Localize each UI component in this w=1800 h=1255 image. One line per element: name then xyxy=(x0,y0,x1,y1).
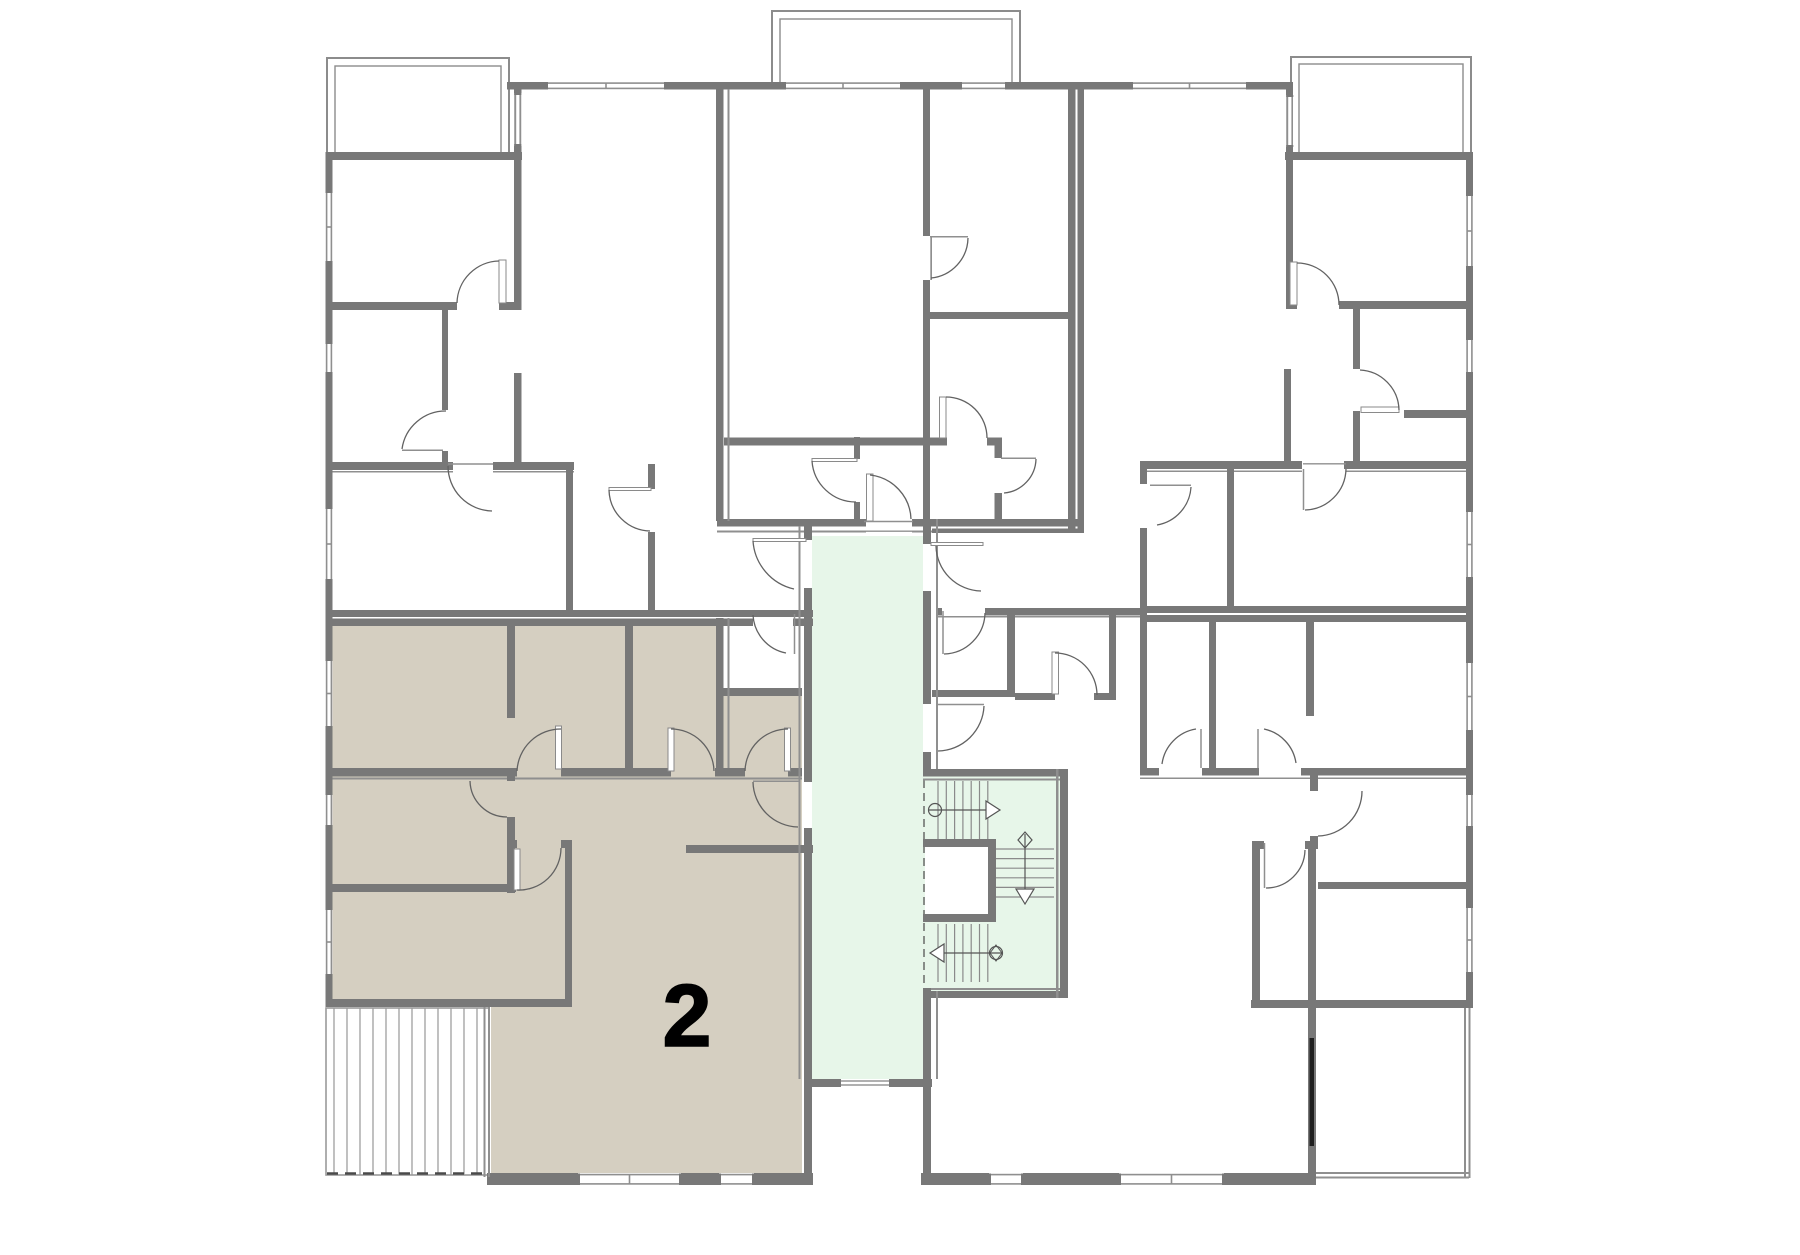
svg-text:2: 2 xyxy=(663,966,712,1065)
